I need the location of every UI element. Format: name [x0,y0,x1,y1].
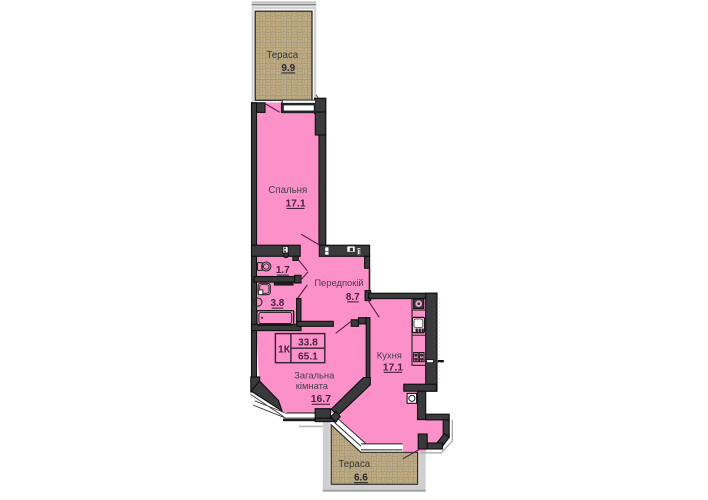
svg-text:Спальня: Спальня [268,185,307,196]
svg-text:1К: 1К [278,344,291,355]
svg-text:1.7: 1.7 [276,265,290,276]
svg-text:6.6: 6.6 [354,473,368,484]
svg-text:Кухня: Кухня [377,349,402,360]
svg-text:8.7: 8.7 [346,292,360,303]
svg-text:Тераса: Тераса [266,50,298,61]
svg-text:16.7: 16.7 [311,394,331,405]
svg-text:65.1: 65.1 [298,351,318,362]
svg-text:3.8: 3.8 [270,298,284,309]
svg-text:Тераса: Тераса [338,459,370,470]
svg-text:17.1: 17.1 [383,362,403,373]
svg-text:кімната: кімната [296,380,329,391]
svg-text:Загальна: Загальна [294,369,335,380]
svg-text:Передпокій: Передпокій [314,277,363,288]
svg-text:33.8: 33.8 [298,337,318,348]
